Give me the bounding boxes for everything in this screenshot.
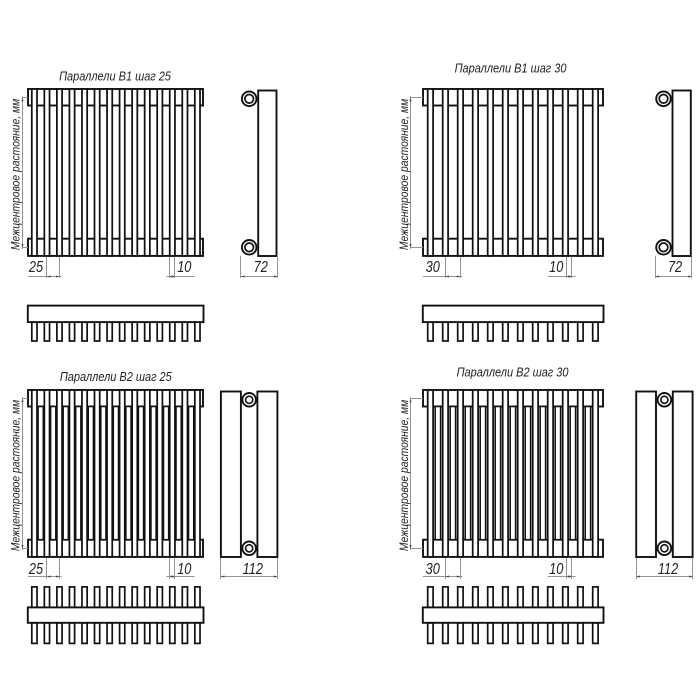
svg-text:Межцентровое растояние, мм: Межцентровое растояние, мм (398, 99, 411, 251)
svg-text:30: 30 (426, 258, 440, 275)
svg-text:25: 25 (28, 258, 43, 275)
svg-text:10: 10 (549, 258, 563, 275)
svg-text:Межцентровое растояние, мм: Межцентровое растояние, мм (10, 99, 23, 251)
svg-text:10: 10 (177, 560, 191, 577)
svg-text:Параллели В1 шаг 30: Параллели В1 шаг 30 (455, 60, 567, 75)
svg-text:72: 72 (254, 258, 268, 275)
svg-text:25: 25 (28, 560, 43, 577)
svg-text:72: 72 (668, 258, 682, 275)
svg-text:30: 30 (426, 560, 440, 577)
svg-text:112: 112 (243, 560, 263, 577)
svg-text:10: 10 (177, 258, 191, 275)
svg-text:Параллели В2 шаг 25: Параллели В2 шаг 25 (60, 369, 172, 384)
svg-text:10: 10 (549, 560, 563, 577)
svg-text:Параллели В2 шаг 30: Параллели В2 шаг 30 (457, 364, 569, 379)
svg-text:Межцентровое растояние, мм: Межцентровое растояние, мм (398, 400, 411, 552)
svg-text:Параллели В1 шаг 25: Параллели В1 шаг 25 (59, 69, 171, 84)
svg-text:Межцентровое растояние, мм: Межцентровое растояние, мм (10, 400, 23, 552)
svg-text:112: 112 (658, 560, 678, 577)
